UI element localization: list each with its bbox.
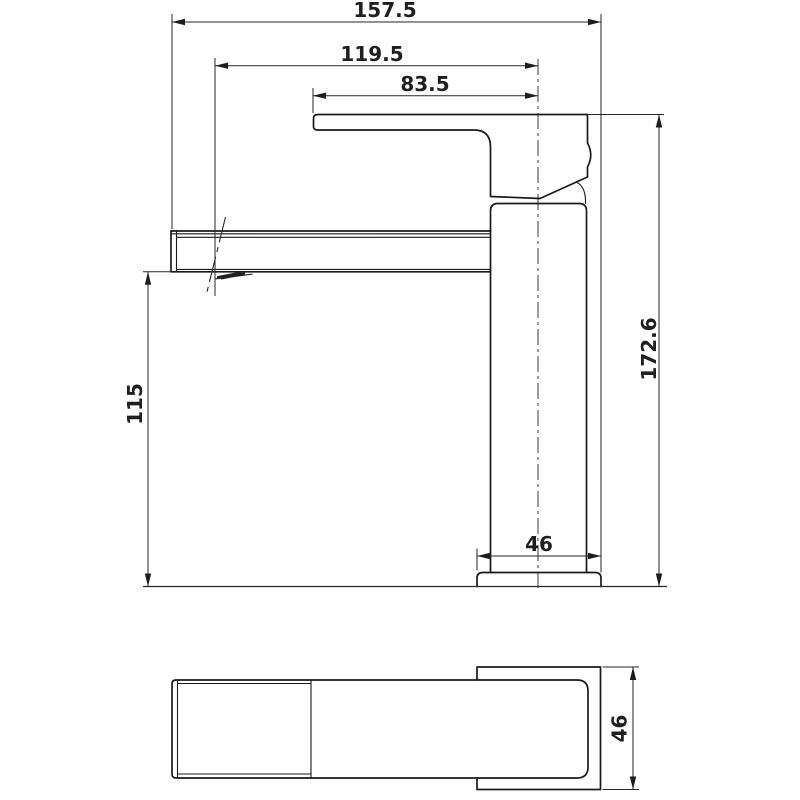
dim-aerator-reach-label: 119.5	[340, 42, 403, 66]
dim-spout-height-label: 115	[123, 383, 147, 425]
aerator-hatch	[216, 273, 252, 279]
dim-base-depth: 46	[608, 667, 637, 790]
dim-base-width: 46	[477, 532, 601, 559]
arrowhead-right	[588, 19, 601, 25]
dim-base-depth-label: 46	[608, 715, 632, 743]
dim-base-width-label: 46	[525, 532, 553, 556]
body-plan-outline	[172, 680, 588, 778]
spout-outline	[171, 231, 491, 272]
arrowhead-right	[525, 93, 538, 99]
spout-plan-detail	[178, 680, 312, 778]
arrowhead-right	[588, 553, 601, 559]
arrowhead-left	[172, 19, 185, 25]
dim-overall-height: 172.6	[637, 115, 662, 587]
base-outline	[477, 573, 601, 587]
dim-spout-height: 115	[123, 272, 151, 587]
arrowhead-right	[525, 63, 538, 69]
arrowhead-bottom	[145, 574, 151, 587]
dim-overall-length: 157.5	[172, 0, 601, 25]
arrowhead-bottom	[656, 574, 662, 587]
dim-handle-reach-label: 83.5	[400, 72, 449, 96]
arrowhead-bottom	[630, 777, 636, 790]
arrowhead-left	[477, 553, 490, 559]
arrowhead-top	[145, 272, 151, 285]
top-view: 46	[172, 667, 639, 790]
faucet-technical-drawing: 157.5 119.5 83.5 172.6 115	[0, 0, 800, 800]
arrowhead-left	[215, 63, 228, 69]
dim-handle-reach: 83.5	[313, 72, 538, 99]
dim-overall-length-label: 157.5	[353, 0, 416, 22]
base-plate-square	[477, 667, 601, 790]
dim-aerator-reach: 119.5	[215, 42, 538, 69]
dim-overall-height-label: 172.6	[637, 317, 661, 380]
arrowhead-top	[656, 115, 662, 128]
handle-outline	[314, 115, 591, 199]
arrowhead-left	[313, 93, 326, 99]
column-outline	[491, 204, 587, 573]
aerator-leader-line	[206, 217, 226, 296]
handle-body-transition-arc	[577, 183, 586, 204]
front-view: 157.5 119.5 83.5 172.6 115	[123, 0, 667, 592]
technical-drawing-page: 157.5 119.5 83.5 172.6 115	[0, 0, 800, 800]
arrowhead-top	[630, 667, 636, 680]
